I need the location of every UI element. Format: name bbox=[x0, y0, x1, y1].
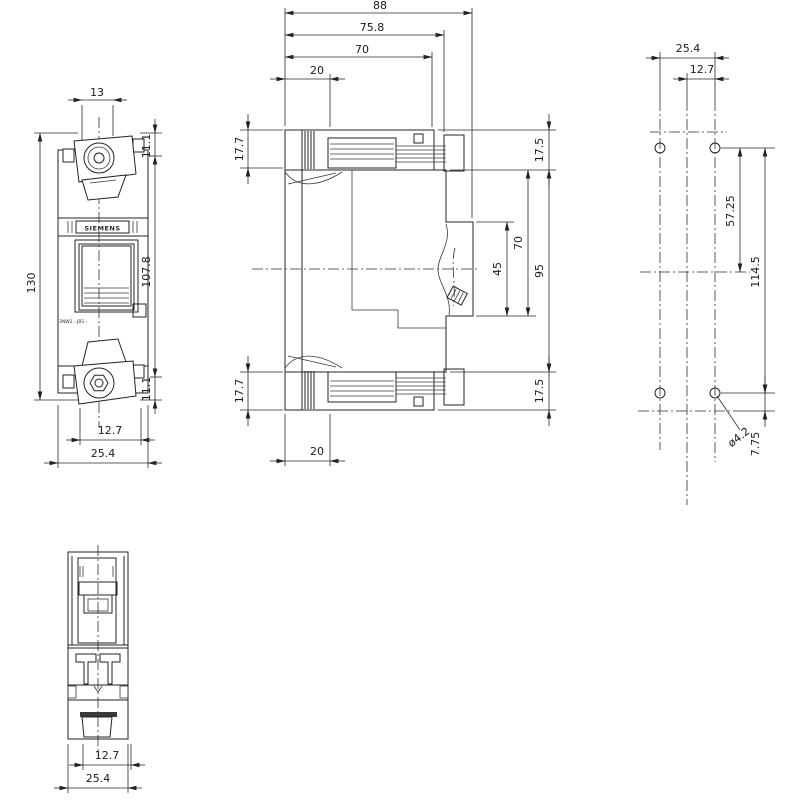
bottom-din-foot bbox=[82, 717, 112, 737]
side-dim-housing-depth-label: 75.8 bbox=[360, 21, 385, 34]
mounting-dim-hole-pitch-h: 25.4 bbox=[646, 42, 729, 100]
side-dim-mounting-height-label: 95 bbox=[533, 264, 546, 278]
front-dim-overall-height-label: 130 bbox=[25, 273, 38, 294]
front-bottom-terminal bbox=[63, 339, 144, 404]
mounting-dim-upper-hole-to-center-label: 57.25 bbox=[724, 195, 737, 227]
mounting-dim-lower-hole-offset: 7.75 bbox=[740, 377, 775, 456]
side-dim-bottom-offset-label: 17.5 bbox=[533, 379, 546, 404]
side-dim-window-height-label: 45 bbox=[491, 262, 504, 276]
front-top-terminal bbox=[63, 136, 144, 200]
mounting-view: 25.4 12.7 57.25 114.5 7.75 bbox=[638, 42, 775, 505]
side-dim-top-offset-label: 17.5 bbox=[533, 138, 546, 163]
mounting-dim-hole-offset-h-label: 12.7 bbox=[690, 63, 715, 76]
bottom-view: 12.7 25.4 bbox=[54, 545, 145, 793]
side-dim-terminal-height-top-label: 17.7 bbox=[233, 137, 246, 162]
side-dim-front-height-label: 70 bbox=[512, 236, 525, 250]
front-dim-terminal-top-label: 11.1 bbox=[140, 134, 153, 159]
bottom-dim-inner-width: 12.7 bbox=[69, 744, 145, 770]
front-dim-inner-width: 12.7 bbox=[66, 408, 155, 445]
front-dim-terminal-bottom-label: 11.1 bbox=[140, 377, 153, 402]
side-top-terminal bbox=[285, 131, 464, 184]
side-carrier-curve bbox=[438, 224, 467, 315]
mounting-dim-upper-hole-to-center: 57.25 bbox=[721, 148, 775, 272]
side-dim-front-depth-label: 70 bbox=[355, 43, 369, 56]
mounting-dim-hole-pitch-v: 114.5 bbox=[721, 148, 775, 393]
technical-drawing: SIEMENS 3NW1.-.JB1.- bbox=[0, 0, 800, 800]
mounting-dim-hole-offset-h: 12.7 bbox=[673, 63, 729, 100]
side-dim-front-depth: 70 bbox=[285, 43, 432, 127]
bottom-dim-inner-width-label: 12.7 bbox=[95, 749, 120, 762]
side-dim-terminal-depth-top: 20 bbox=[270, 64, 345, 127]
brand-band: SIEMENS bbox=[68, 221, 137, 233]
side-dim-right: 17.5 45 70 95 17.5 bbox=[438, 114, 556, 426]
side-dim-housing-depth: 75.8 bbox=[285, 21, 444, 132]
side-bottom-terminal bbox=[285, 356, 464, 409]
front-dim-overall-width-label: 25.4 bbox=[91, 447, 116, 460]
brand-label: SIEMENS bbox=[84, 225, 120, 233]
side-dim-overall-depth-label: 88 bbox=[373, 0, 387, 12]
front-dim-width-top: 13 bbox=[68, 86, 127, 140]
side-dim-terminal-depth-bottom-label: 20 bbox=[310, 445, 324, 458]
side-body-outline bbox=[285, 130, 473, 410]
side-dim-terminal-height-bottom-label: 17.7 bbox=[233, 379, 246, 404]
dimension-drawing-page: SIEMENS 3NW1.-.JB1.- bbox=[0, 0, 800, 800]
front-dim-body-height-label: 107.8 bbox=[140, 256, 153, 288]
side-view: 88 75.8 70 20 17.7 bbox=[233, 0, 556, 466]
front-dim-width-top-label: 13 bbox=[90, 86, 104, 99]
mounting-dim-hole-pitch-v-label: 114.5 bbox=[749, 256, 762, 288]
mounting-dim-hole-pitch-h-label: 25.4 bbox=[676, 42, 701, 55]
bottom-dim-overall-width-label: 25.4 bbox=[86, 772, 111, 785]
front-indicator-window bbox=[133, 304, 146, 317]
front-dim-overall-height: 130 bbox=[25, 133, 78, 400]
bottom-rail-slot bbox=[80, 712, 117, 717]
mounting-dim-hole-diameter: ø4.2 bbox=[717, 396, 752, 450]
side-dim-terminal-height-bottom: 17.7 bbox=[233, 356, 283, 426]
side-dim-terminal-depth-bottom: 20 bbox=[270, 414, 345, 466]
front-view: SIEMENS 3NW1.-.JB1.- bbox=[25, 86, 162, 468]
part-number-label: 3NW1.-.JB1.- bbox=[59, 319, 88, 325]
front-dim-inner-width-label: 12.7 bbox=[98, 424, 123, 437]
fuse-carrier-front bbox=[75, 240, 138, 312]
side-dim-terminal-height-top: 17.7 bbox=[233, 114, 283, 184]
side-dim-terminal-depth-top-label: 20 bbox=[310, 64, 324, 77]
